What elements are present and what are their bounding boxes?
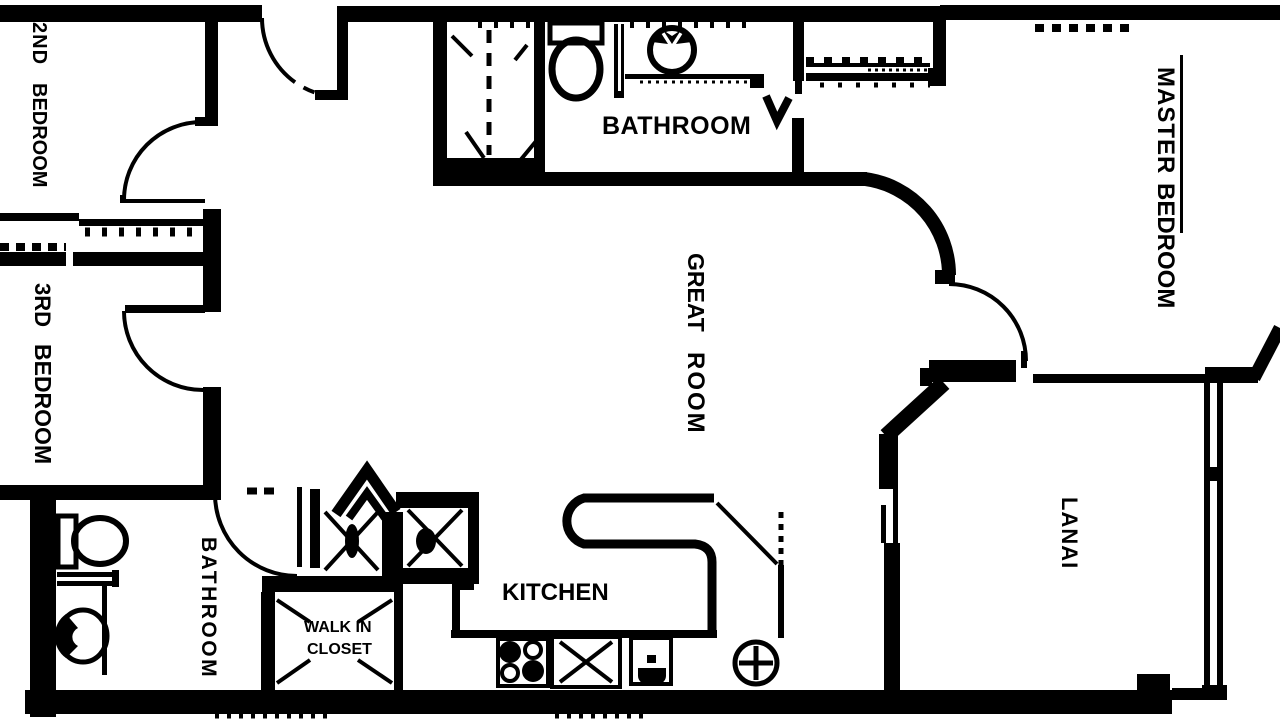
svg-text:BEDROOM: BEDROOM bbox=[28, 83, 50, 187]
svg-text:3RD: 3RD bbox=[30, 283, 55, 327]
svg-text:GREAT: GREAT bbox=[683, 253, 709, 332]
svg-text:CLOSET: CLOSET bbox=[307, 641, 372, 658]
svg-text:LANAI: LANAI bbox=[1057, 497, 1082, 569]
svg-text:BATHROOM: BATHROOM bbox=[197, 537, 220, 679]
svg-text:KITCHEN: KITCHEN bbox=[502, 579, 609, 606]
svg-text:MASTER: MASTER bbox=[1152, 67, 1179, 174]
svg-text:ROOM: ROOM bbox=[682, 352, 709, 435]
svg-text:BEDROOM: BEDROOM bbox=[1152, 183, 1179, 308]
svg-text:WALK IN: WALK IN bbox=[304, 619, 372, 636]
svg-text:BATHROOM: BATHROOM bbox=[602, 112, 751, 140]
svg-text:2ND: 2ND bbox=[28, 22, 50, 65]
svg-text:BEDROOM: BEDROOM bbox=[30, 344, 56, 464]
